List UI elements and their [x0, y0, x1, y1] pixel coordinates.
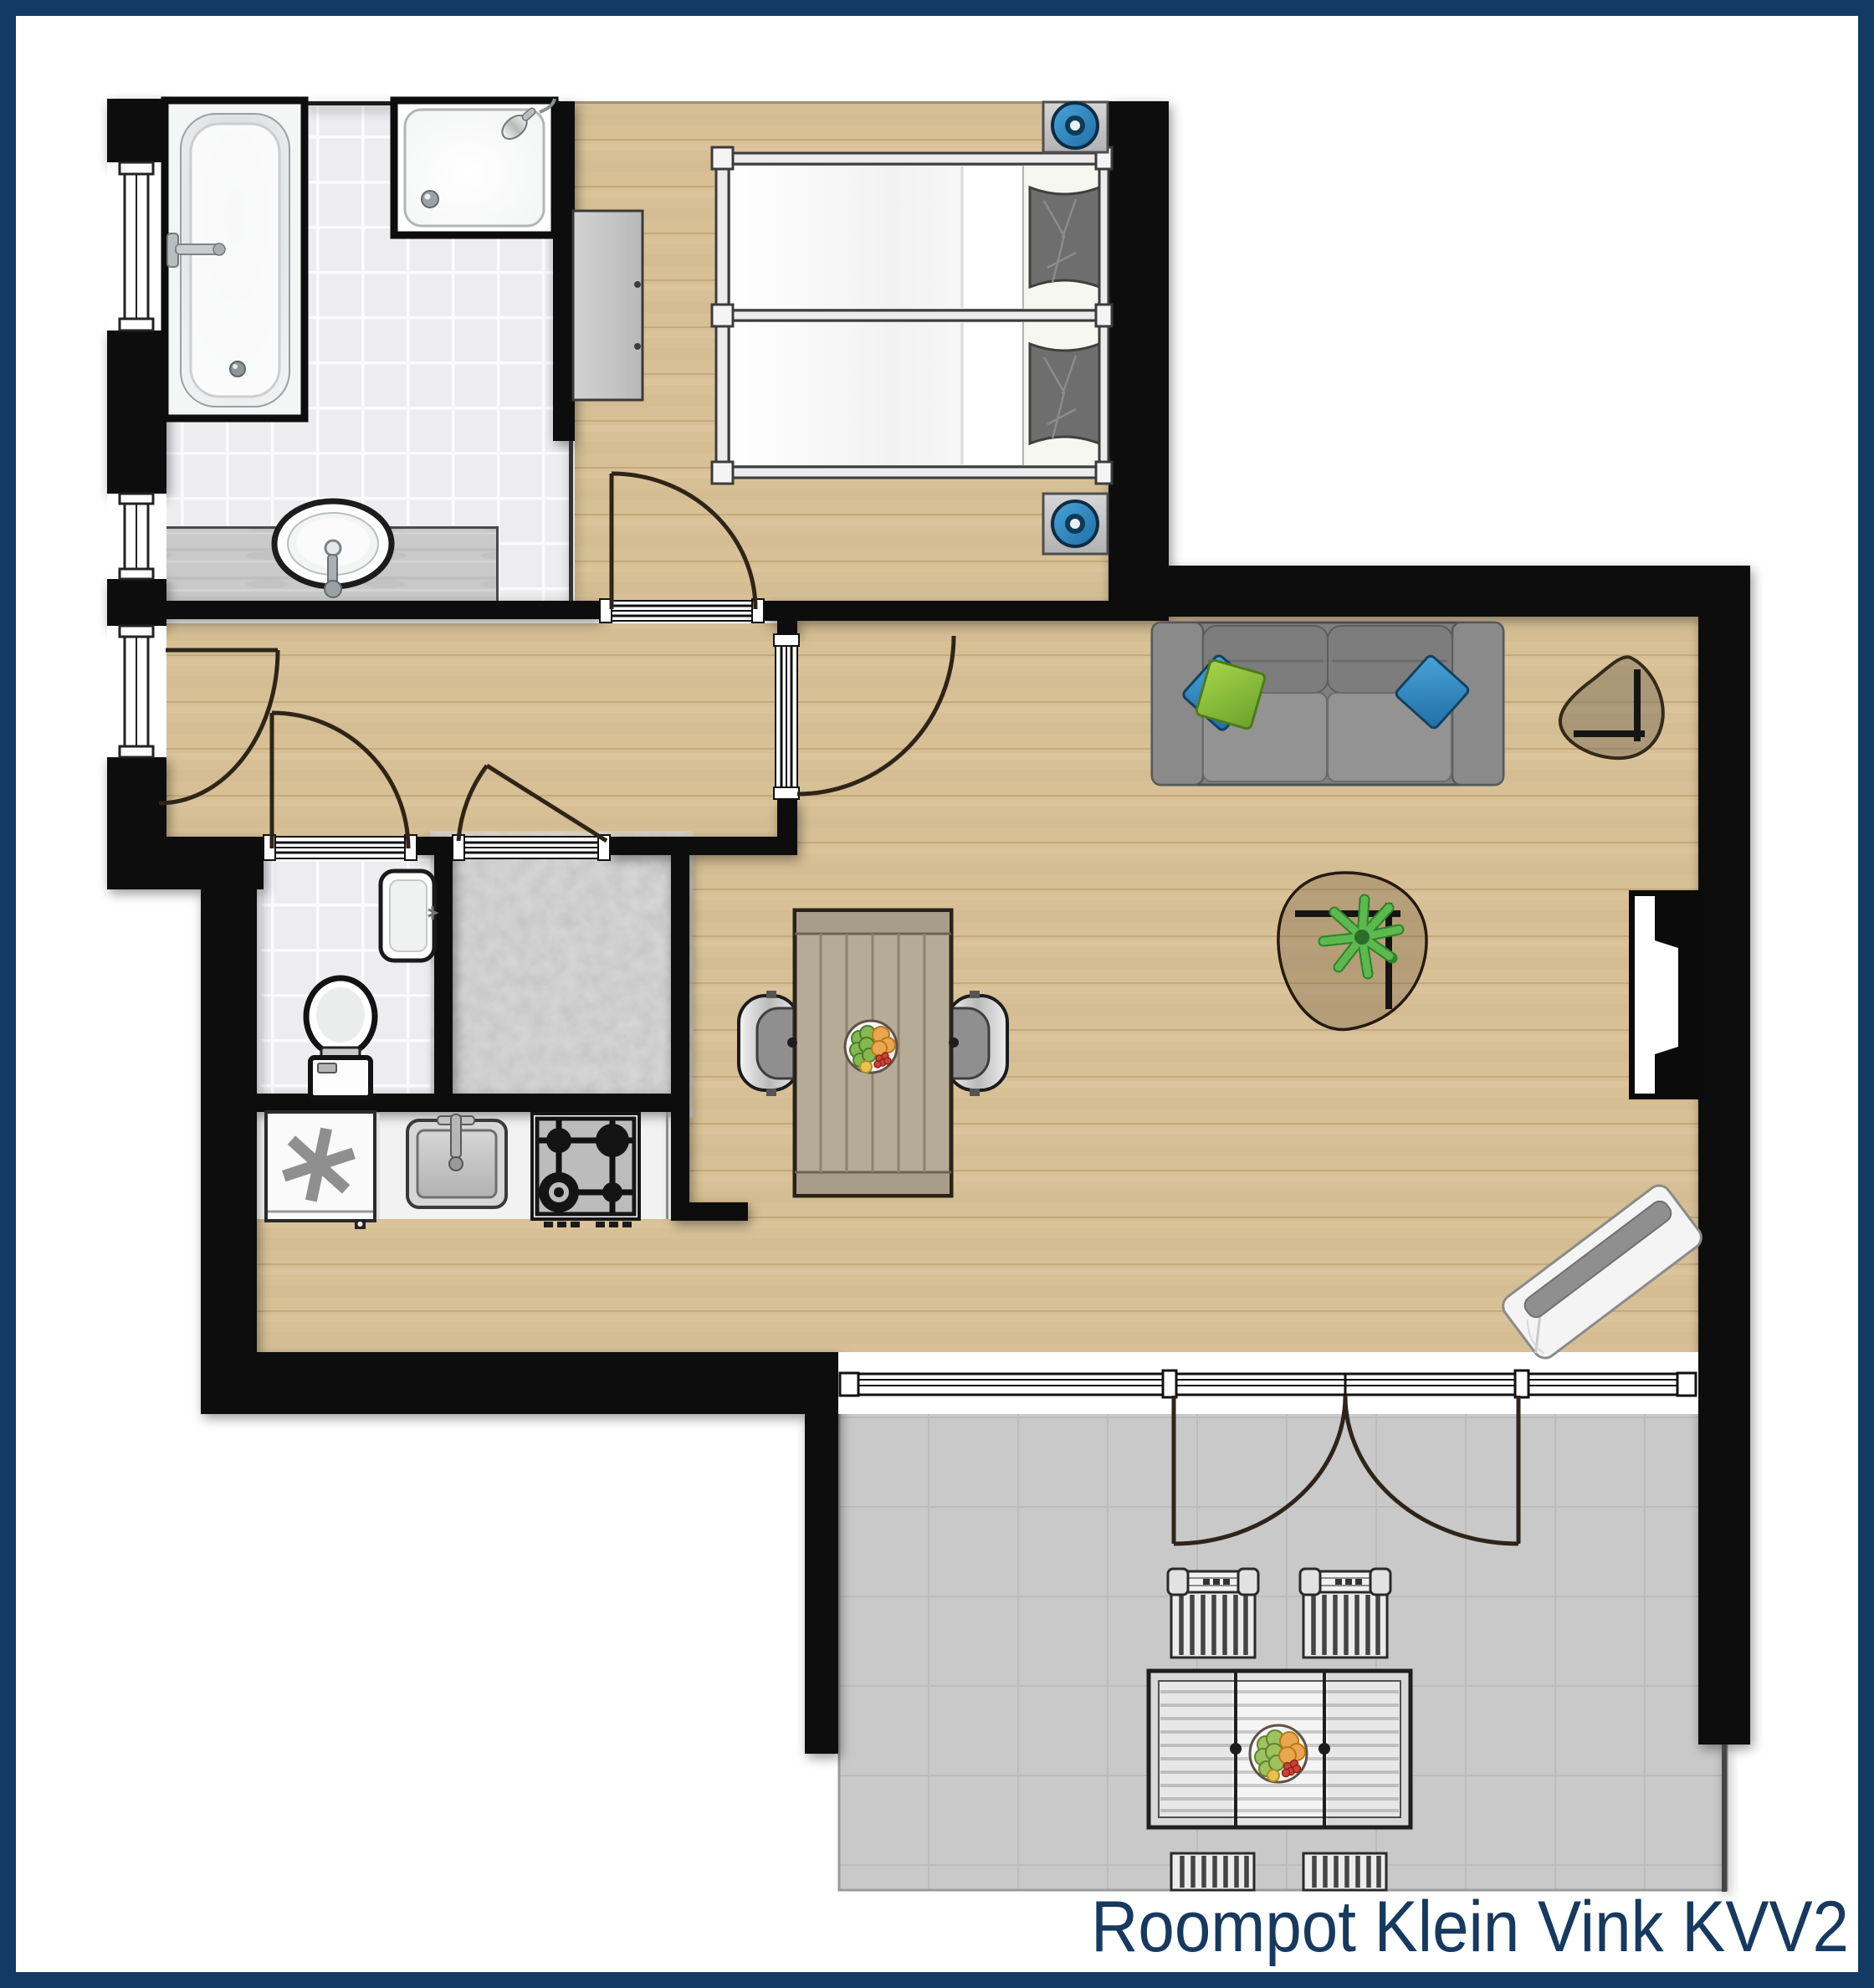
svg-text:Roompot Klein Vink KVV2: Roompot Klein Vink KVV2 — [1091, 1887, 1849, 1967]
